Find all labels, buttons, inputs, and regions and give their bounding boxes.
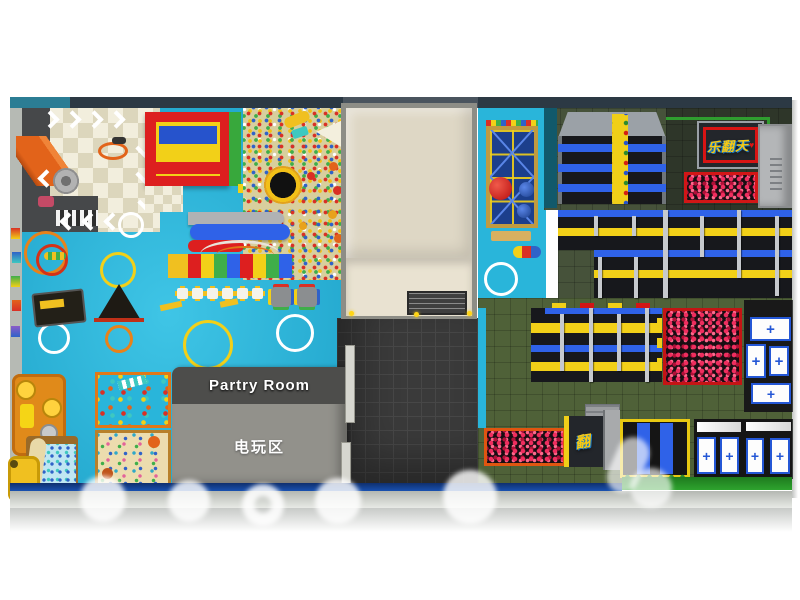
court-stripe-yellow [531,323,662,333]
plus-icon: + [751,448,759,464]
foam-pit-top-right [684,172,758,203]
watermark-blob [443,470,497,524]
party-room-title: Partry Room [209,377,310,394]
entrance-tiled-floor [337,318,478,483]
bottom-shadow-fade [10,508,792,532]
donut-trampoline [262,166,304,204]
tramp-vstripe-blue [660,423,673,474]
court-left-notch-turf [558,250,594,298]
plus-icon: + [752,353,761,370]
heart-icon: ♥ [749,140,754,150]
court-bumper [580,303,594,308]
donut-tube-slide [50,166,82,196]
pit-pad-yellow [657,358,662,368]
wall-game-chip [11,326,20,337]
wall-game-chip [12,252,21,263]
ball-large [307,172,315,180]
sand-ball-orange [148,436,160,448]
court-divider [560,314,564,371]
slide-arc-line-orange [216,246,274,264]
plus-icon: + [775,353,784,370]
floor-ring-white [484,262,518,296]
green-border-line [666,117,770,120]
teal-wall [544,108,557,208]
kids-table [207,288,218,299]
slide-tower-green-edge [229,112,241,186]
bench [345,345,355,423]
landing-mat-plus: + [697,437,716,474]
court-divider [737,210,741,278]
checker-patch [145,186,183,212]
ball-large [329,162,338,171]
ball-large [328,210,337,219]
brand-logo-board: 乐翻天♥ [697,121,764,169]
plus-icon: + [702,448,710,464]
top-wall-teal-segment [10,97,70,108]
court-stripe-blue [531,345,662,352]
slide-tower-red-step [150,162,226,174]
train-wheel [42,398,62,418]
ball-large [299,222,307,230]
pit-pad-yellow [657,318,662,328]
wall-game-chip [11,276,20,287]
court-divider [617,314,621,371]
train-cab [20,404,34,428]
soft-cushion [38,196,54,207]
court-bumper [552,303,566,308]
plus-icon: + [725,448,733,464]
corner-bumper-dot [349,311,354,316]
trike-hoop [98,142,128,160]
brand-logo-red-frame: 乐翻天♥ [703,127,758,163]
landing-mat-plus: + [751,383,791,404]
kids-table [222,288,233,299]
floor-outside-strip [10,491,792,508]
landing-mat-plus: + [720,437,739,474]
kids-table [237,288,248,299]
wall-game-chip [12,300,21,311]
group-table [271,287,291,307]
climb-triangle-base [94,318,144,322]
wall-game-chip [11,228,20,239]
court-divider [700,216,704,257]
floor-ring-yellow [100,252,136,288]
slide-tower-blue-pad [159,126,217,144]
corner-bumper-dot [414,312,419,317]
roof-top [346,108,472,258]
rainbow-ramp-yellow-pad [168,254,188,278]
watermark-ring [242,484,284,526]
watermark-hand-blob [630,468,672,508]
court-bumper [608,303,622,308]
logo-ramp: 翻 [564,416,603,467]
trike-seat [112,137,126,144]
court-divider [594,216,598,236]
white-bar [697,422,741,432]
spider-tower-confetti [486,120,538,126]
floor-ring-white [38,322,70,354]
floor-ring-white [118,212,144,238]
caterpillar-dots [44,252,66,260]
party-room-header: Partry Room [172,367,347,404]
red-ball [489,177,512,200]
caterpillar-toy [36,244,68,276]
blue-ball [519,182,534,197]
plus-icon: + [766,321,775,338]
watermark-blob [168,480,210,522]
court-divider [663,210,668,298]
foam-pit-bottom-left [484,428,566,466]
floor-ring-yellow [183,320,233,370]
court-stripe-yellow [531,362,662,371]
landing-mat-plus: + [769,346,789,376]
blue-ball [517,204,531,218]
blue-edge-strip [478,308,486,428]
plus-icon: + [767,386,775,402]
party-room-zone-label: 电玩区 [172,436,347,457]
plus-icon: + [776,448,784,464]
group-table [297,287,317,307]
kids-table [177,288,188,299]
car-wheel [10,460,18,468]
foam-pit-middle [663,308,742,385]
watermark-blob [315,478,361,524]
floor-ring-white [276,314,314,352]
slide-blue [190,224,290,240]
court-divider [775,216,779,296]
train-wheel [16,380,36,400]
court-divider [634,257,638,298]
tan-mat [491,231,531,241]
floor-ring-orange [105,325,133,353]
court-divider [632,216,636,236]
logo-ramp-text: 翻 [574,430,593,453]
court-divider [645,308,649,382]
landing-mat-plus: + [750,317,791,341]
floorplan-render: Partry Room 电玩区 乐翻天♥ [0,0,800,600]
corner-bumper-dot [467,311,472,316]
court-divider [589,308,593,382]
kids-table [252,288,263,299]
white-bar [746,422,791,431]
landing-mat-plus: + [770,438,790,474]
court-divider [598,257,602,298]
landing-mat-plus: + [746,438,764,474]
caterpillar-ball-toy [513,246,541,258]
pit-pad-yellow [657,338,662,348]
watermark-blob [80,476,126,522]
climb-strip-yellow [612,114,628,204]
platform-ladder [770,158,782,190]
court-bumper [636,303,650,308]
right-edge-shadow [792,100,798,498]
kids-table [192,288,203,299]
landing-mat-plus: + [746,344,766,378]
brand-logo-text: 乐翻天 [706,134,749,155]
